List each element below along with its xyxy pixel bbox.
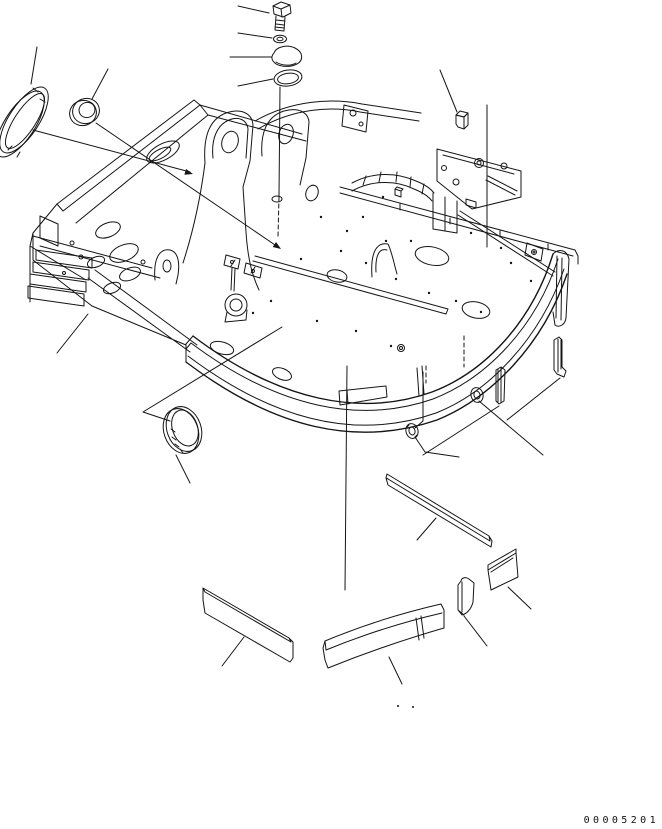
curved-plate-callout-line bbox=[345, 366, 347, 590]
rubber-block bbox=[456, 111, 468, 129]
parts-diagram-page: 00005201 bbox=[0, 0, 662, 829]
wear-ring-leader-2 bbox=[176, 455, 190, 483]
wear-ring bbox=[157, 402, 208, 459]
corner-plate-leader bbox=[508, 587, 531, 609]
shim-strip-large-leader bbox=[507, 378, 560, 420]
rubber-block-leader bbox=[440, 70, 457, 112]
grommet-left-leader bbox=[415, 437, 459, 457]
flat-side-plate-leader bbox=[222, 637, 244, 666]
square-bar-leader bbox=[417, 518, 436, 540]
flat-washer bbox=[274, 35, 287, 43]
grommet-left bbox=[404, 422, 419, 440]
grommet-right-leader bbox=[479, 401, 543, 455]
grommet-left-axis bbox=[415, 372, 423, 428]
curved-front-plate-leader bbox=[389, 657, 402, 684]
exploded-parts-diagram bbox=[0, 0, 662, 829]
shim-strip-large bbox=[554, 337, 566, 377]
wedge-block bbox=[458, 578, 474, 615]
flat-side-plate bbox=[203, 588, 293, 662]
drawing-number: 00005201 bbox=[584, 815, 659, 826]
hex-bolt bbox=[273, 2, 291, 31]
wear-ring-leader bbox=[143, 327, 282, 421]
deck-grommet bbox=[398, 345, 405, 352]
seal-ring bbox=[273, 68, 303, 88]
square-bar bbox=[386, 474, 492, 547]
cap bbox=[272, 46, 302, 66]
grommet-leader bbox=[92, 69, 108, 99]
wedge-block-leader bbox=[464, 616, 487, 646]
curved-front-plate bbox=[323, 604, 444, 668]
grommet-arrow-line bbox=[96, 123, 281, 249]
oval-seal-ring bbox=[0, 80, 57, 164]
corner-plate bbox=[488, 549, 518, 590]
oval-seal-leader bbox=[31, 47, 37, 84]
